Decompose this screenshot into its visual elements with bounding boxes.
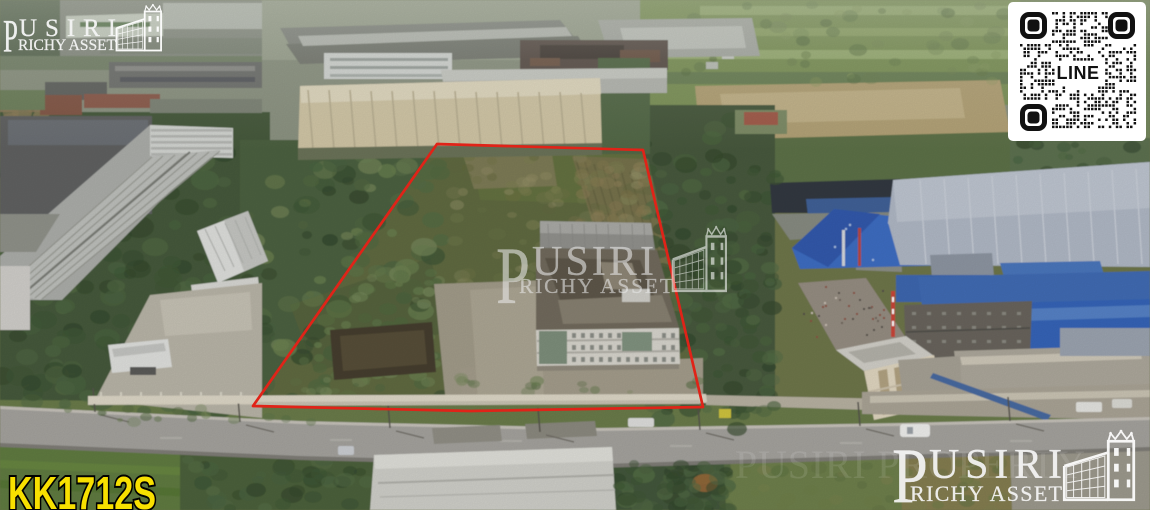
- svg-text:KK1712S: KK1712S: [8, 467, 156, 510]
- svg-text:RICHY ASSET: RICHY ASSET: [519, 274, 673, 298]
- svg-text:RICHY ASSET: RICHY ASSET: [18, 37, 117, 54]
- svg-text:P: P: [3, 11, 18, 63]
- svg-text:RICHY ASSET: RICHY ASSET: [910, 481, 1063, 506]
- svg-text:LINE: LINE: [1056, 63, 1099, 83]
